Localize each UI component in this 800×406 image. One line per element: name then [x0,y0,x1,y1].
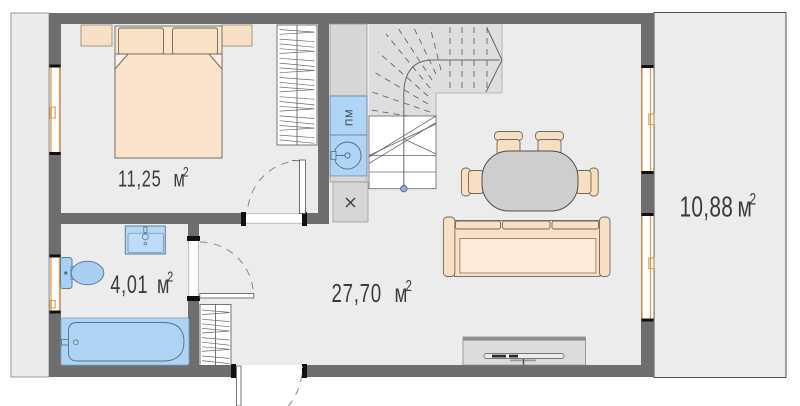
svg-text:11,25: 11,25 [118,167,161,192]
svg-text:2: 2 [167,268,173,285]
svg-text:4,01: 4,01 [110,270,148,299]
svg-text:2: 2 [406,276,413,294]
svg-text:2: 2 [750,191,757,209]
svg-text:27,70: 27,70 [332,278,382,308]
svg-text:ПМ: ПМ [345,108,356,126]
svg-text:10,88: 10,88 [680,191,734,223]
svg-text:2: 2 [183,164,189,180]
